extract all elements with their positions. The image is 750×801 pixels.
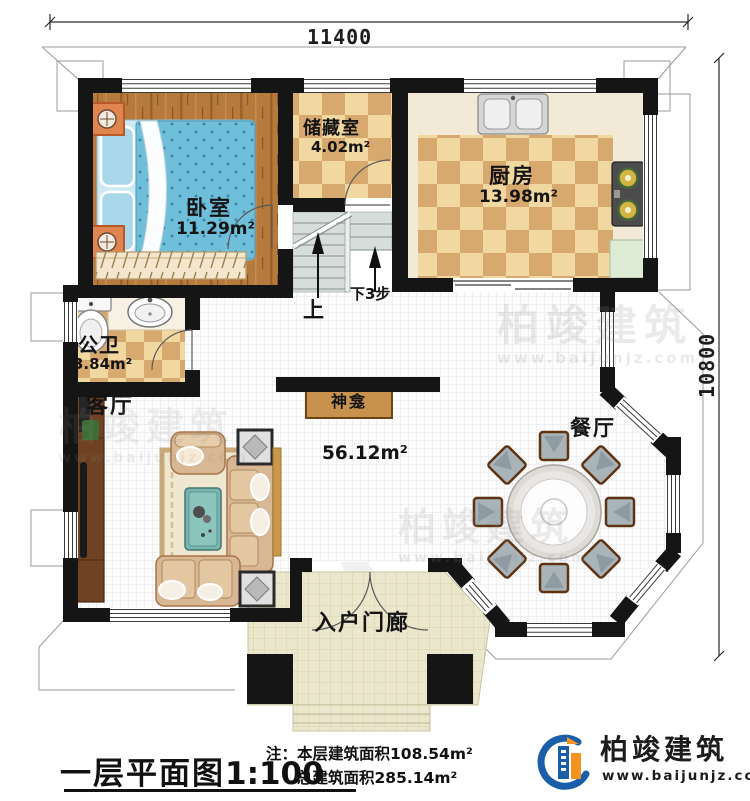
logo-mark-icon <box>534 730 598 794</box>
floor-porch <box>248 572 490 731</box>
room-label-storage: 储藏室 <box>303 120 360 138</box>
armchair-icon <box>171 432 225 474</box>
tv-cabinet-icon <box>76 388 104 602</box>
room-area-bedroom: 11.29m² <box>176 221 255 238</box>
note-line-1: 注：本层建筑面积108.54m² <box>266 742 473 766</box>
room-label-dining: 餐厅 <box>570 418 616 439</box>
kitchen-sink-icon <box>478 94 548 134</box>
area-notes: 注：本层建筑面积108.54m² 总建筑面积285.14m² <box>266 742 473 790</box>
logo-website: www.baijunjz.com <box>602 770 750 784</box>
console-strip <box>273 448 281 556</box>
note-line-2: 总建筑面积285.14m² <box>297 766 473 790</box>
dining-table-icon <box>507 465 601 559</box>
porch-label: 入户门廊 <box>314 613 410 635</box>
living-dining-area: 56.12m² <box>322 445 408 464</box>
coffee-table-icon <box>185 488 221 550</box>
logo-company-name: 柏竣建筑 <box>600 736 728 764</box>
shrine-label: 神龛 <box>306 394 392 410</box>
room-area-kitchen: 13.98m² <box>479 189 558 206</box>
dimension-right-label: 10800 <box>697 333 717 398</box>
bath-sink-icon <box>128 297 172 327</box>
room-label-bedroom: 卧室 <box>186 198 232 219</box>
room-label-living: 客厅 <box>86 396 134 418</box>
floorplan-page: 11400 10800 卧室 11.29m² 储藏室 4.02m² 厨房 13.… <box>0 0 750 801</box>
room-area-storage: 4.02m² <box>311 140 370 155</box>
company-logo: 柏竣建筑 www.baijunjz.com <box>534 728 746 796</box>
room-label-bathroom: 公卫 <box>78 335 120 355</box>
sliding-door-icon <box>453 278 573 292</box>
room-label-kitchen: 厨房 <box>489 166 535 187</box>
room-area-bathroom: 3.84m² <box>73 357 132 372</box>
stairs-up-label: 上 <box>303 300 324 321</box>
stove-icon <box>612 162 644 226</box>
dimension-top-label: 11400 <box>307 27 372 47</box>
stairs-down-label: 下3步 <box>350 287 390 302</box>
page-title: 一层平面图 <box>60 756 225 792</box>
wardrobe-icon <box>96 252 246 279</box>
fridge-icon <box>610 240 644 278</box>
